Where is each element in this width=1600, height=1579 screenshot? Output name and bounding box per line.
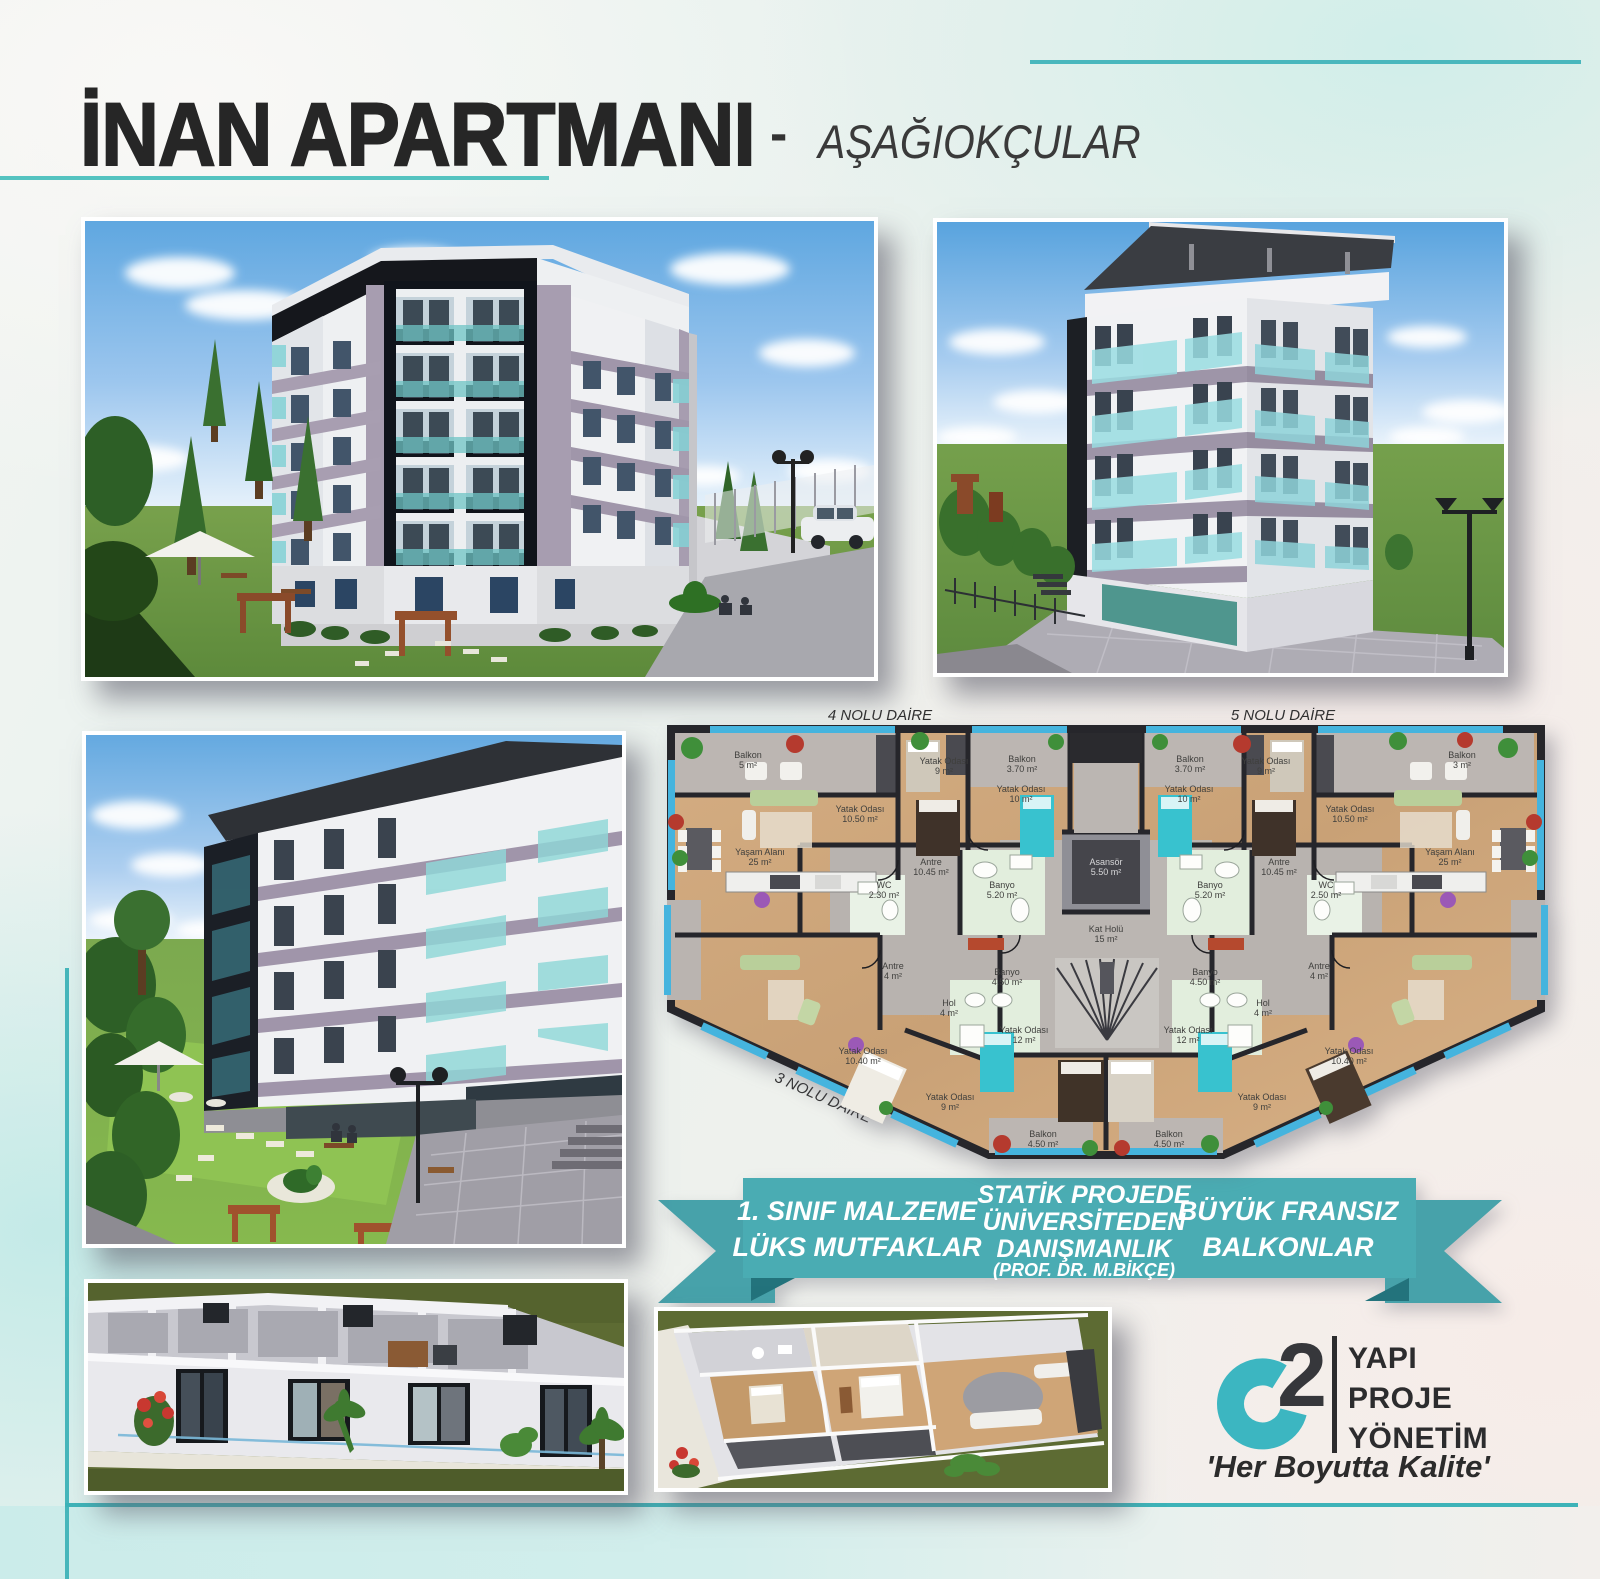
svg-text:3 m²: 3 m² (1453, 760, 1471, 770)
svg-text:BÜYÜK FRANSIZ: BÜYÜK FRANSIZ (1178, 1196, 1400, 1226)
svg-text:Balkon: Balkon (1155, 1129, 1183, 1139)
svg-text:10.45 m²: 10.45 m² (1261, 867, 1297, 877)
svg-text:15 m²: 15 m² (1094, 934, 1117, 944)
svg-text:10.50 m²: 10.50 m² (1332, 814, 1368, 824)
svg-text:'Her Boyutta Kalite': 'Her Boyutta Kalite' (1206, 1449, 1491, 1484)
svg-text:4.50 m²: 4.50 m² (992, 977, 1023, 987)
svg-text:9 m²: 9 m² (941, 1102, 959, 1112)
svg-text:WC: WC (877, 880, 892, 890)
svg-text:3.70 m²: 3.70 m² (1175, 764, 1206, 774)
svg-text:Yaşam Alanı: Yaşam Alanı (1425, 847, 1475, 857)
svg-text:Balkon: Balkon (1176, 754, 1204, 764)
svg-text:9 m²: 9 m² (1253, 1102, 1271, 1112)
svg-text:Yatak Odası: Yatak Odası (997, 784, 1046, 794)
svg-text:3.70 m²: 3.70 m² (1007, 764, 1038, 774)
svg-text:Banyo: Banyo (989, 880, 1015, 890)
svg-text:Yatak Odası: Yatak Odası (1165, 784, 1214, 794)
svg-text:4 m²: 4 m² (884, 971, 902, 981)
svg-text:10.40 m²: 10.40 m² (1331, 1056, 1367, 1066)
svg-text:Yaşam Alanı: Yaşam Alanı (735, 847, 785, 857)
svg-text:BALKONLAR: BALKONLAR (1203, 1232, 1374, 1262)
svg-text:4 m²: 4 m² (940, 1008, 958, 1018)
svg-text:Antre: Antre (1308, 961, 1330, 971)
svg-text:10.45 m²: 10.45 m² (913, 867, 949, 877)
svg-text:Kat Holü: Kat Holü (1089, 924, 1124, 934)
svg-text:Balkon: Balkon (1029, 1129, 1057, 1139)
svg-text:(PROF. DR. M.BİKÇE): (PROF. DR. M.BİKÇE) (993, 1260, 1175, 1280)
svg-text:10 m²: 10 m² (1009, 794, 1032, 804)
svg-text:Balkon: Balkon (1448, 750, 1476, 760)
svg-text:25 m²: 25 m² (748, 857, 771, 867)
svg-text:Hol: Hol (1256, 998, 1270, 1008)
svg-text:YAPI: YAPI (1348, 1342, 1417, 1375)
svg-text:10.40 m²: 10.40 m² (845, 1056, 881, 1066)
svg-text:9 m²: 9 m² (1257, 766, 1275, 776)
svg-text:ÜNİVERSİTEDEN: ÜNİVERSİTEDEN (983, 1207, 1187, 1236)
svg-text:PROJE: PROJE (1348, 1382, 1452, 1415)
svg-text:Yatak Odası: Yatak Odası (1000, 1025, 1049, 1035)
svg-text:LÜKS MUTFAKLAR: LÜKS MUTFAKLAR (733, 1232, 982, 1262)
svg-text:9 m²: 9 m² (935, 766, 953, 776)
svg-text:1. SINIF MALZEME: 1. SINIF MALZEME (737, 1196, 978, 1226)
svg-text:12 m²: 12 m² (1176, 1035, 1199, 1045)
svg-text:Balkon: Balkon (1008, 754, 1036, 764)
svg-text:5.20 m²: 5.20 m² (1195, 890, 1226, 900)
svg-text:Yatak Odası: Yatak Odası (839, 1046, 888, 1056)
svg-text:25 m²: 25 m² (1438, 857, 1461, 867)
svg-text:5.20 m²: 5.20 m² (987, 890, 1018, 900)
svg-text:Banyo: Banyo (994, 967, 1020, 977)
svg-text:2.30 m²: 2.30 m² (869, 890, 900, 900)
svg-text:Antre: Antre (920, 857, 942, 867)
svg-text:4 m²: 4 m² (1310, 971, 1328, 981)
svg-text:Yatak Odası: Yatak Odası (920, 756, 969, 766)
svg-text:4 m²: 4 m² (1254, 1008, 1272, 1018)
svg-text:Antre: Antre (882, 961, 904, 971)
svg-text:Banyo: Banyo (1192, 967, 1218, 977)
svg-text:10.50 m²: 10.50 m² (842, 814, 878, 824)
svg-text:WC: WC (1319, 880, 1334, 890)
svg-text:STATİK PROJEDE: STATİK PROJEDE (978, 1181, 1192, 1209)
svg-text:Yatak Odası: Yatak Odası (1238, 1092, 1287, 1102)
svg-text:Banyo: Banyo (1197, 880, 1223, 890)
svg-text:DANIŞMANLIK: DANIŞMANLIK (997, 1235, 1174, 1263)
svg-text:Yatak Odası: Yatak Odası (836, 804, 885, 814)
svg-text:Yatak Odası: Yatak Odası (1164, 1025, 1213, 1035)
svg-text:Antre: Antre (1268, 857, 1290, 867)
svg-text:5 m²: 5 m² (739, 760, 757, 770)
svg-text:2: 2 (1277, 1326, 1327, 1426)
svg-text:4.50 m²: 4.50 m² (1028, 1139, 1059, 1149)
svg-text:2.50 m²: 2.50 m² (1311, 890, 1342, 900)
svg-text:Hol: Hol (942, 998, 956, 1008)
svg-text:Yatak Odası: Yatak Odası (1242, 756, 1291, 766)
svg-text:Yatak Odası: Yatak Odası (1325, 1046, 1374, 1056)
svg-text:Balkon: Balkon (734, 750, 762, 760)
svg-text:Asansör: Asansör (1089, 857, 1122, 867)
svg-text:10 m²: 10 m² (1177, 794, 1200, 804)
svg-text:Yatak Odası: Yatak Odası (926, 1092, 975, 1102)
svg-text:4.50 m²: 4.50 m² (1190, 977, 1221, 987)
svg-text:4.50 m²: 4.50 m² (1154, 1139, 1185, 1149)
svg-text:Yatak Odası: Yatak Odası (1326, 804, 1375, 814)
svg-text:12 m²: 12 m² (1012, 1035, 1035, 1045)
svg-text:5.50 m²: 5.50 m² (1091, 867, 1122, 877)
